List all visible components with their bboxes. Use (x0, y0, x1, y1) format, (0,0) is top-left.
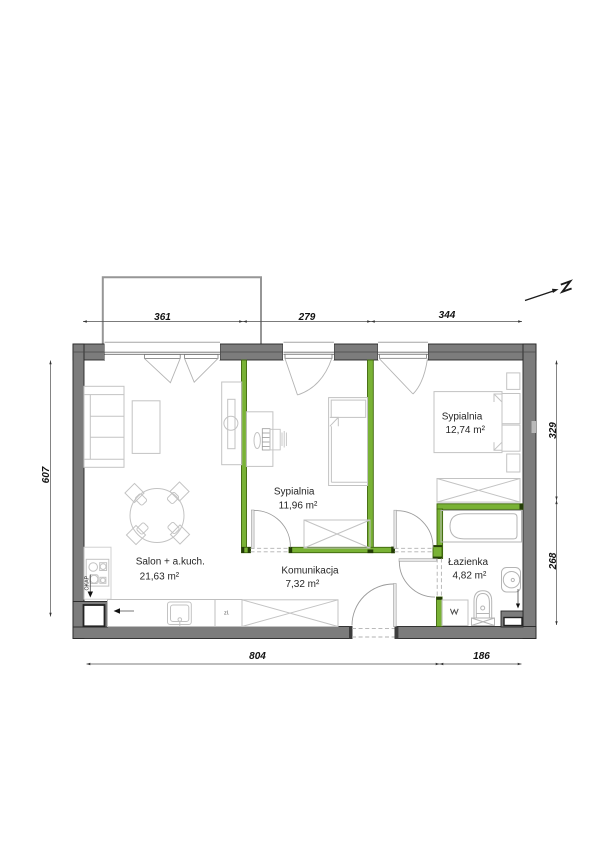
svg-text:186: 186 (473, 651, 490, 662)
svg-text:21,63 m²: 21,63 m² (140, 572, 180, 583)
svg-text:361: 361 (154, 312, 171, 323)
svg-text:Sypialnia: Sypialnia (274, 487, 315, 498)
svg-text:11,96 m²: 11,96 m² (279, 501, 318, 512)
svg-text:12,74 m²: 12,74 m² (445, 425, 485, 436)
svg-text:zl.: zl. (224, 611, 230, 617)
svg-text:Sypialnia: Sypialnia (442, 411, 483, 422)
svg-text:279: 279 (298, 312, 316, 323)
svg-text:4,82 m²: 4,82 m² (452, 571, 487, 582)
svg-text:268: 268 (548, 552, 559, 570)
svg-text:7,32 m²: 7,32 m² (285, 579, 320, 590)
svg-text:Łazienka: Łazienka (448, 557, 488, 568)
svg-text:329: 329 (548, 422, 559, 439)
svg-text:344: 344 (439, 310, 456, 321)
svg-text:804: 804 (249, 651, 266, 662)
svg-text:Komunikacja: Komunikacja (281, 565, 339, 576)
svg-text:OKAP: OKAP (84, 575, 90, 590)
svg-text:607: 607 (41, 466, 52, 483)
svg-text:Salon + a.kuch.: Salon + a.kuch. (136, 557, 205, 568)
